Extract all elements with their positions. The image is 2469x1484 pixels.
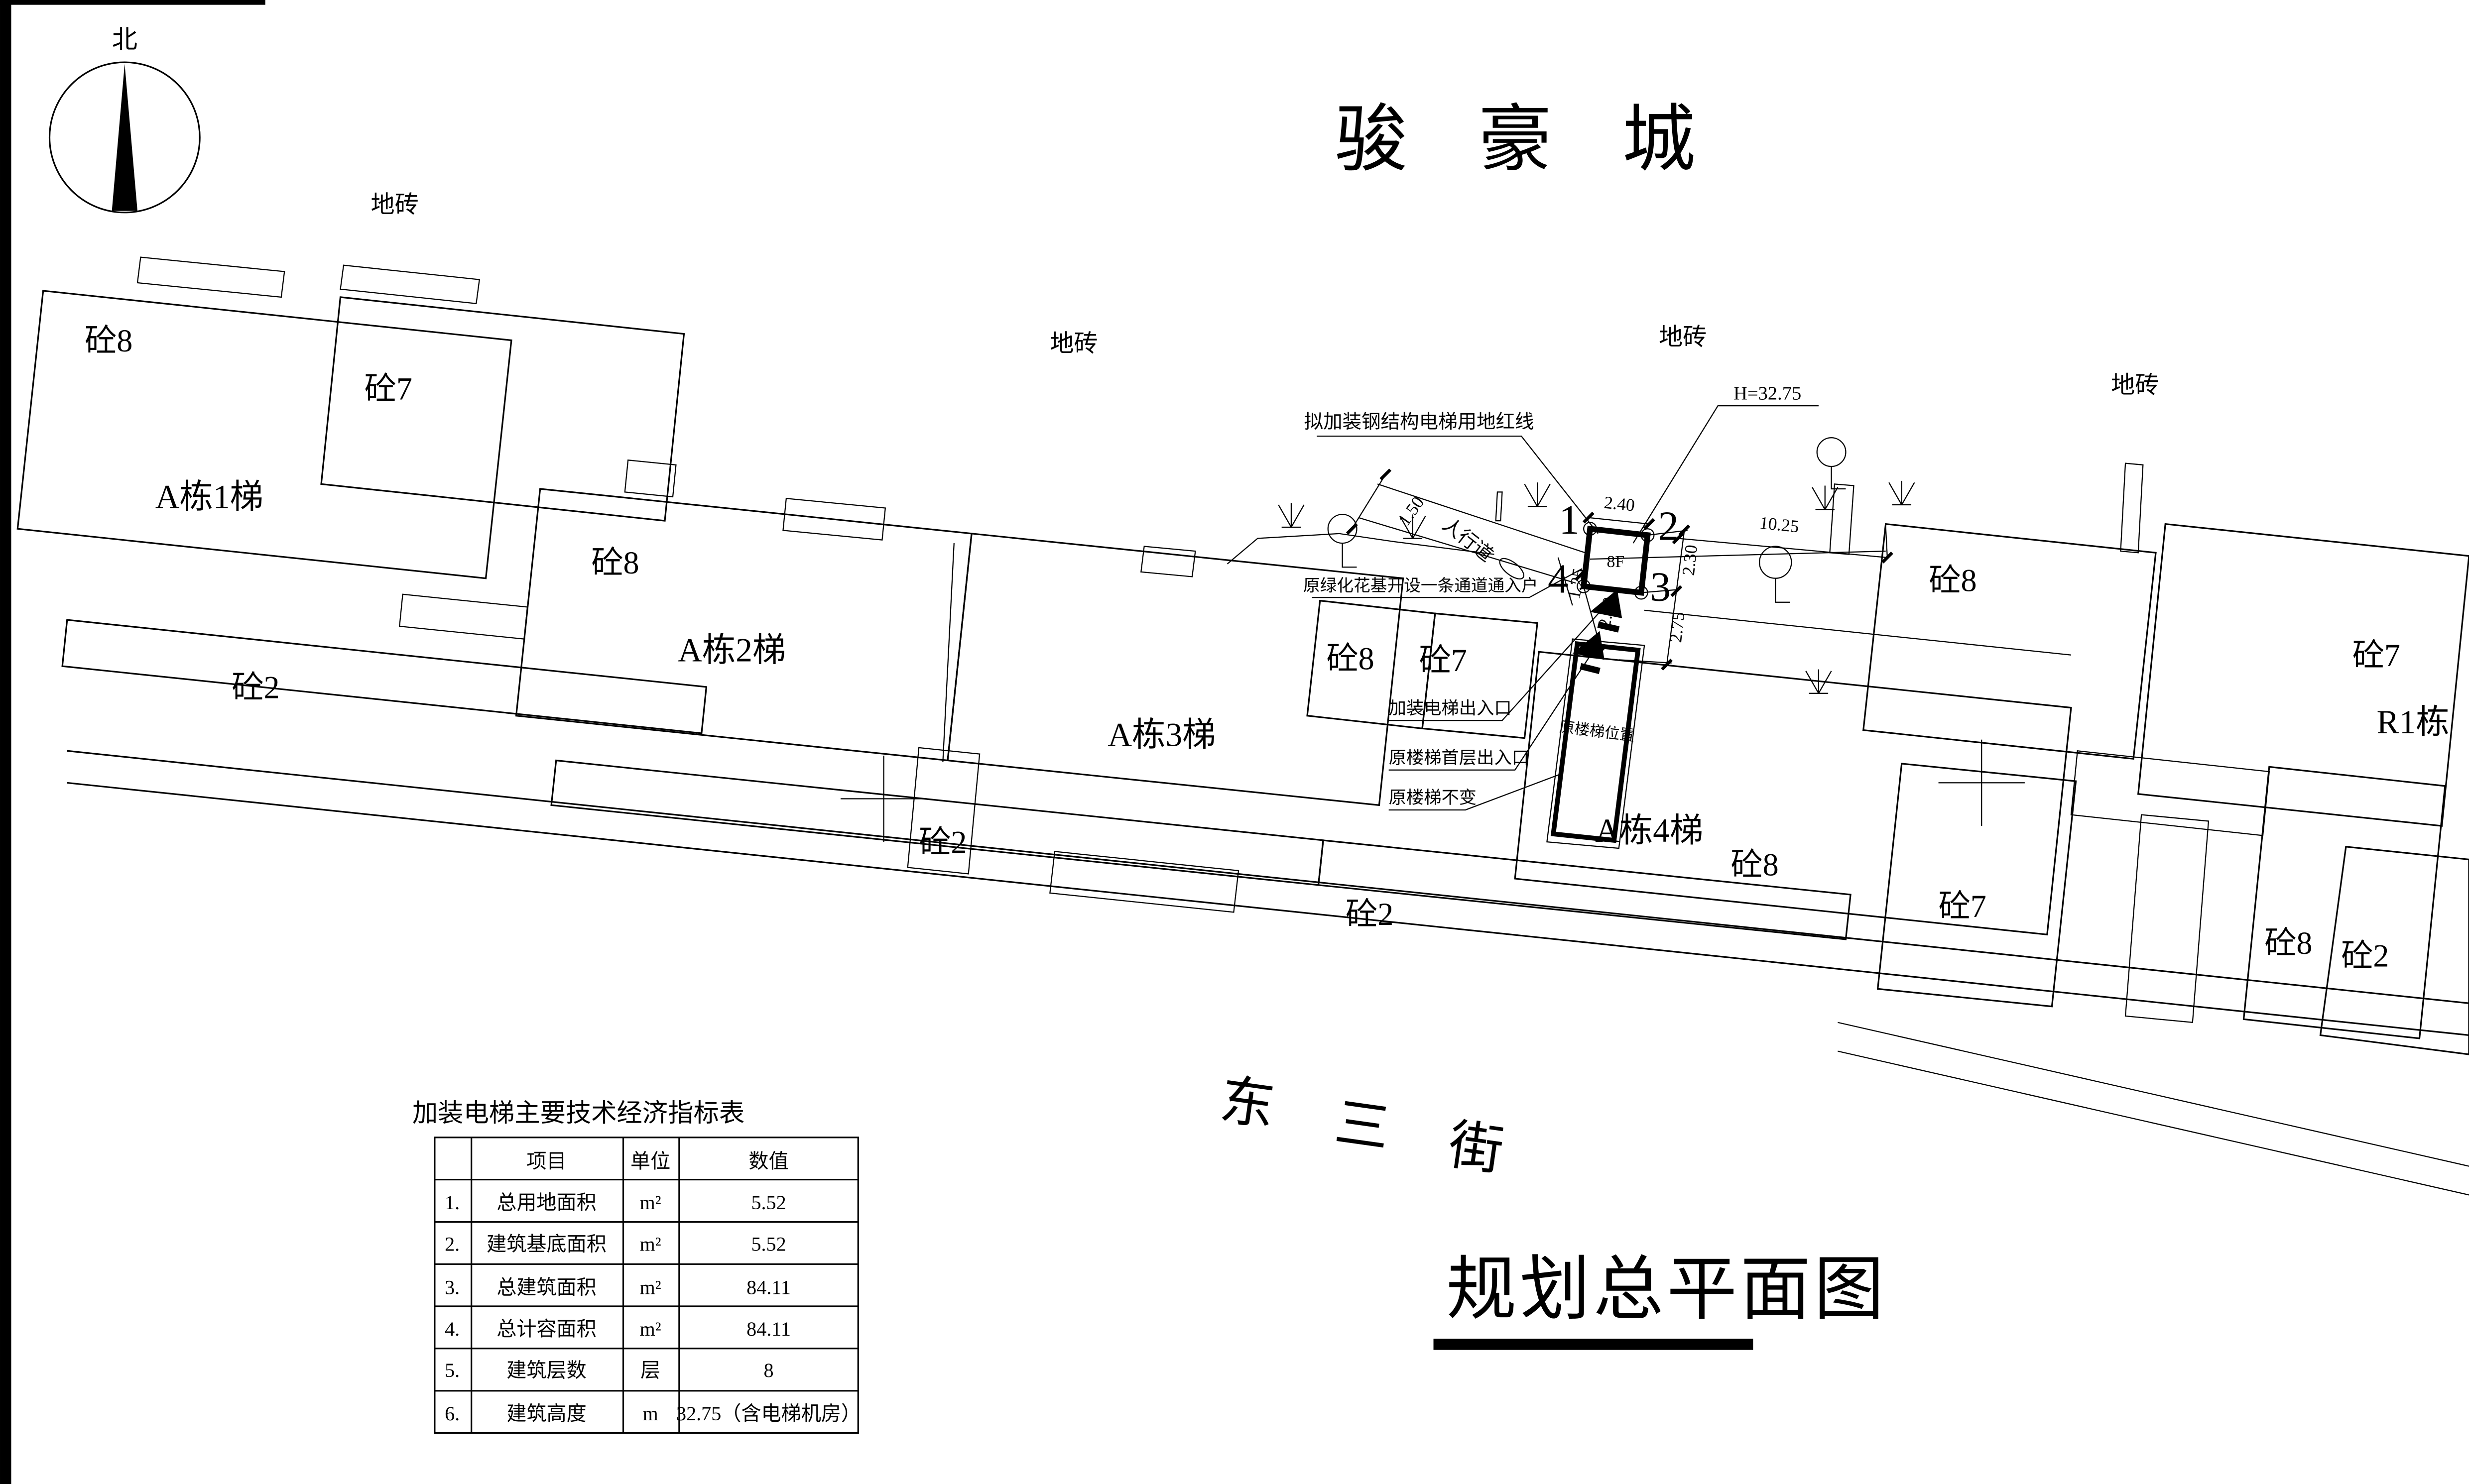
building-label: 砼2	[2341, 938, 2389, 973]
shrub-icon	[1889, 481, 1914, 505]
dim-gap: 10.25	[1758, 513, 1800, 536]
building-label: 砼7	[1939, 889, 1986, 924]
surface-label: 地砖	[2111, 372, 2159, 398]
row-item: 建筑基底面积	[487, 1233, 607, 1256]
row-num: 2.	[445, 1233, 460, 1256]
dim-right-lower: 2.75	[1666, 611, 1688, 643]
site-plan-drawing: 北 骏豪城 地砖 地砖 地砖 地砖	[0, 0, 2469, 1484]
building-a2-outline	[516, 489, 972, 761]
crosshair-icon	[841, 756, 927, 842]
building-label: 砼8	[591, 545, 639, 580]
dim-tick	[1347, 524, 1357, 534]
surface-label: 地砖	[1659, 324, 1707, 350]
stair-location-label: 原楼梯位置	[1558, 718, 1635, 744]
tree-icon	[1817, 438, 1846, 489]
building-label: A栋3梯	[1108, 716, 1216, 754]
division-line	[943, 543, 954, 762]
dim-line-gap	[1678, 538, 1887, 558]
shrub-icon	[1524, 482, 1550, 506]
crosshair-icon	[1939, 740, 2025, 826]
drawing-title: 规划总平面图	[1446, 1251, 1887, 1329]
row-item: 总用地面积	[496, 1191, 597, 1214]
building-label: 砼7	[2352, 638, 2400, 673]
table-row: 4. 总计容面积 m² 84.11	[445, 1318, 791, 1340]
row-value: 32.75（含电梯机房）	[676, 1402, 861, 1425]
building-a4-outline	[1515, 652, 2071, 934]
top-border-bar	[0, 0, 265, 5]
floor-label: 8F	[1607, 553, 1625, 571]
row-value: 5.52	[751, 1191, 786, 1214]
building-label: 砼7	[1419, 643, 1467, 678]
surface-label: 地砖	[371, 192, 419, 218]
street-name-char: 东	[1217, 1070, 1279, 1137]
row-num: 5.	[445, 1359, 460, 1381]
roof-rect	[399, 594, 527, 639]
building-label: 砼2	[232, 670, 279, 705]
green-note: 原绿化花基开设一条通道通入户	[1303, 576, 1538, 595]
building-label: 砼8	[1327, 641, 1374, 677]
row-value: 5.52	[751, 1233, 786, 1256]
drawing-title-block: 规划总平面图	[1434, 1251, 1887, 1350]
street-name-char: 三	[1332, 1092, 1394, 1159]
indicator-table: 加装电梯主要技术经济指标表 项目 单位 数值 1. 总用地面积 m² 5.52 …	[412, 1099, 861, 1433]
street-name-char: 街	[1445, 1115, 1507, 1182]
table-row: 1. 总用地面积 m² 5.52	[445, 1191, 786, 1214]
building-label: 砼7	[365, 371, 412, 406]
table-header: 项目	[526, 1150, 566, 1172]
elevator-detail: 8F 1 2 3 4 原楼梯位置	[1547, 497, 1679, 848]
shrub-icon	[1278, 503, 1304, 527]
building-label: 砼8	[1730, 847, 1778, 883]
south-curb-line	[1838, 1023, 2469, 1166]
dim-right-upper: 2.30	[1679, 544, 1701, 576]
table-row: 3. 总建筑面积 m² 84.11	[445, 1276, 791, 1298]
row-value: 84.11	[746, 1318, 791, 1340]
row-item: 建筑高度	[506, 1402, 586, 1425]
building-label: A栋1梯	[155, 478, 263, 515]
roof-rect	[137, 257, 284, 297]
north-needle-icon	[112, 64, 137, 211]
row-unit: m²	[639, 1191, 661, 1214]
building-k7-south-outline	[1878, 764, 2076, 1007]
table-title: 加装电梯主要技术经济指标表	[412, 1099, 744, 1128]
elevator-entrance-note: 加装电梯出入口	[1389, 698, 1512, 718]
row-unit: m	[642, 1402, 658, 1425]
dim-top: 2.40	[1603, 493, 1635, 515]
row-unit: m²	[639, 1233, 661, 1256]
surface-label: 地砖	[1050, 331, 1098, 357]
north-curb-line2	[67, 783, 2469, 1035]
south-curb-line2	[1838, 1051, 2469, 1195]
row-num: 3.	[445, 1276, 460, 1298]
boundary-line	[1644, 610, 2071, 655]
point-number: 3	[1650, 565, 1671, 610]
building-k8-ne-outline	[1863, 524, 2156, 759]
walkway-label: 人行道	[1438, 514, 1497, 566]
building-t-stem	[2125, 815, 2209, 1023]
building-labels: 砼8 砼7 A栋1梯 砼2 砼8 A栋2梯 砼2 A栋3梯 砼8 砼7 砼2 A…	[85, 323, 2450, 973]
roof-rect	[1141, 546, 1195, 576]
site-plan-page: 北 骏豪城 地砖 地砖 地砖 地砖	[0, 0, 2469, 1484]
row-item: 建筑层数	[506, 1359, 586, 1381]
street-name: 东 三 街	[1217, 1070, 1507, 1182]
strip-k2-left	[62, 620, 706, 733]
stair-entrance-note: 原楼梯首层出入口	[1389, 748, 1529, 768]
north-label: 北	[112, 25, 137, 54]
row-item: 总建筑面积	[496, 1276, 597, 1298]
walkway-width-dim: 1.50	[1394, 493, 1428, 529]
row-num: 4.	[445, 1318, 460, 1340]
building-t-bar	[2071, 751, 2269, 835]
building-r1-outline	[2138, 524, 2469, 826]
building-label: 砼2	[919, 825, 967, 860]
row-num: 1.	[445, 1191, 460, 1214]
building-label: 砼2	[1346, 897, 1393, 932]
row-unit: m²	[639, 1276, 661, 1298]
table-row: 2. 建筑基底面积 m² 5.52	[445, 1233, 786, 1256]
dim-tick	[1381, 469, 1390, 479]
table-header: 单位	[630, 1150, 670, 1172]
row-value: 84.11	[746, 1276, 791, 1298]
drawing-title-underline	[1434, 1339, 1753, 1350]
dimensions: 2.40 2.30 2.75 2.30 1.25 10.25	[1558, 493, 1892, 670]
table-row: 6. 建筑高度 m 32.75（含电梯机房）	[445, 1402, 861, 1425]
tree-icon	[1328, 514, 1357, 567]
building-label: R1栋	[2377, 703, 2450, 741]
left-border-bar	[0, 0, 11, 1484]
bed-outline2	[1590, 551, 1886, 559]
row-item: 总计容面积	[496, 1318, 597, 1340]
point-number: 1	[1559, 497, 1580, 543]
building-label: A栋2梯	[678, 632, 786, 669]
row-unit: 层	[640, 1359, 660, 1381]
north-curb-line	[67, 751, 2469, 1003]
row-unit: m²	[639, 1318, 661, 1340]
post-rect	[1496, 492, 1502, 521]
table-row: 5. 建筑层数 层 8	[445, 1359, 773, 1381]
building-label: A栋4梯	[1595, 812, 1703, 849]
roof-rect	[2120, 463, 2143, 553]
table-header: 数值	[748, 1150, 788, 1172]
building-k7-left-outline	[321, 297, 684, 521]
stair-unchanged-note: 原楼梯不变	[1389, 788, 1477, 807]
roof-rect	[341, 265, 480, 304]
row-num: 6.	[445, 1402, 460, 1425]
building-label: 砼8	[2264, 925, 2312, 961]
height-note: H=32.75	[1733, 383, 1801, 404]
building-label: 砼8	[85, 323, 132, 358]
project-title: 骏豪城	[1335, 99, 1766, 181]
witness-line	[1886, 527, 1887, 558]
building-label: 砼8	[1929, 563, 1976, 598]
dim-line-top	[1589, 518, 1649, 524]
red-line-note: 拟加装钢结构电梯用地红线	[1304, 412, 1534, 433]
north-compass: 北	[49, 25, 200, 213]
dim-left: 2.30	[1595, 595, 1619, 629]
row-value: 8	[764, 1359, 774, 1381]
strip-k2-mid	[551, 761, 1323, 885]
